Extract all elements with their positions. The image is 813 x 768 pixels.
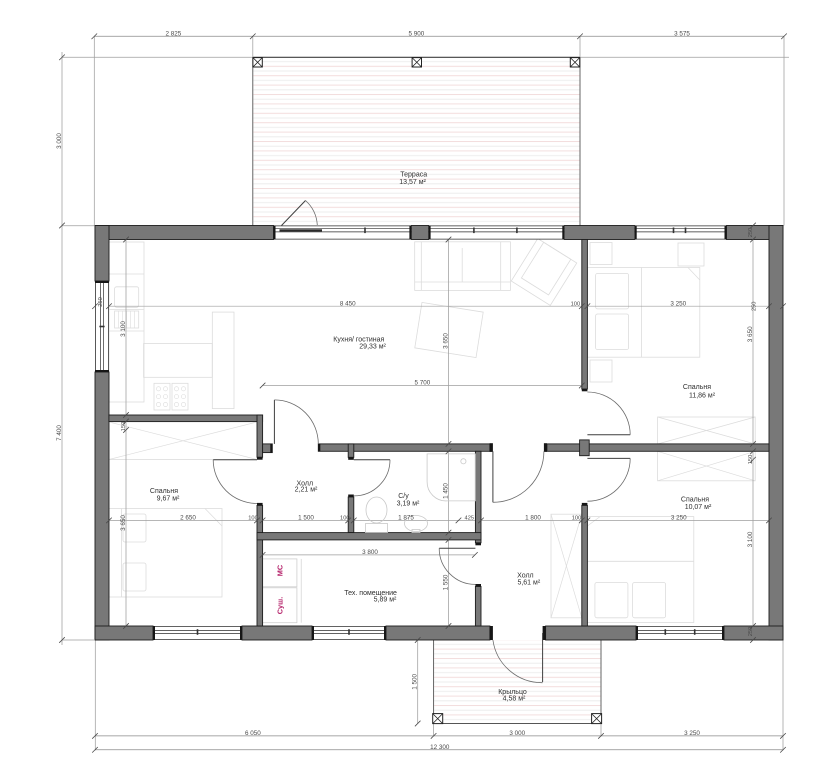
svg-text:150: 150 (748, 455, 754, 465)
svg-text:Спальня: Спальня (681, 496, 709, 503)
svg-text:1 875: 1 875 (398, 515, 414, 522)
svg-text:Спальня: Спальня (683, 384, 711, 391)
svg-text:3 100: 3 100 (120, 321, 127, 337)
svg-text:3 650: 3 650 (747, 326, 754, 342)
svg-text:1 500: 1 500 (412, 674, 419, 690)
svg-text:5,89 м²: 5,89 м² (374, 596, 397, 603)
svg-text:Терраса: Терраса (400, 172, 427, 179)
svg-text:3 000: 3 000 (56, 133, 63, 149)
svg-text:3 250: 3 250 (684, 730, 700, 737)
svg-text:3 000: 3 000 (509, 730, 525, 737)
svg-text:100: 100 (571, 301, 581, 307)
svg-text:Кухня/ гостиная: Кухня/ гостиная (333, 337, 384, 344)
svg-text:10,07 м²: 10,07 м² (685, 504, 712, 511)
svg-text:11,86 м²: 11,86 м² (689, 393, 716, 400)
svg-text:С/у: С/у (398, 493, 409, 500)
svg-text:13,57 м²: 13,57 м² (399, 179, 426, 186)
svg-text:3 250: 3 250 (670, 300, 686, 307)
svg-text:МС: МС (276, 564, 285, 576)
svg-text:250: 250 (752, 302, 758, 312)
svg-text:250: 250 (98, 297, 104, 307)
svg-text:1 800: 1 800 (525, 515, 541, 522)
svg-text:7 400: 7 400 (56, 425, 63, 441)
svg-text:5 700: 5 700 (415, 380, 431, 387)
svg-text:3 100: 3 100 (747, 531, 754, 547)
svg-text:2,21 м²: 2,21 м² (295, 487, 318, 494)
svg-text:100: 100 (572, 516, 582, 522)
svg-text:Спальня: Спальня (150, 488, 178, 495)
svg-text:250: 250 (748, 627, 754, 637)
svg-text:5,61 м²: 5,61 м² (517, 579, 540, 586)
svg-text:2 825: 2 825 (166, 30, 182, 37)
svg-text:8 450: 8 450 (340, 300, 356, 307)
svg-text:3,19 м²: 3,19 м² (397, 500, 420, 507)
svg-text:5 900: 5 900 (409, 30, 425, 37)
svg-text:3 650: 3 650 (120, 515, 127, 531)
svg-text:9,67 м²: 9,67 м² (157, 496, 180, 503)
svg-text:12 300: 12 300 (430, 744, 450, 751)
svg-text:1 500: 1 500 (298, 515, 314, 522)
svg-text:3 250: 3 250 (671, 515, 687, 522)
svg-text:29,33 м²: 29,33 м² (359, 344, 386, 351)
svg-text:1 550: 1 550 (443, 574, 450, 590)
svg-text:150: 150 (121, 422, 127, 432)
svg-text:4,58 м²: 4,58 м² (503, 695, 526, 702)
svg-text:100: 100 (248, 516, 258, 522)
svg-text:6 050: 6 050 (245, 730, 261, 737)
svg-text:250: 250 (748, 228, 754, 238)
svg-text:2 650: 2 650 (180, 515, 196, 522)
svg-text:425: 425 (465, 516, 475, 522)
svg-text:3 800: 3 800 (362, 549, 378, 556)
svg-text:3 575: 3 575 (674, 30, 690, 37)
svg-text:100: 100 (340, 516, 350, 522)
svg-text:1 450: 1 450 (443, 483, 450, 499)
svg-text:Суш.: Суш. (276, 597, 285, 614)
svg-text:3 650: 3 650 (443, 333, 450, 349)
